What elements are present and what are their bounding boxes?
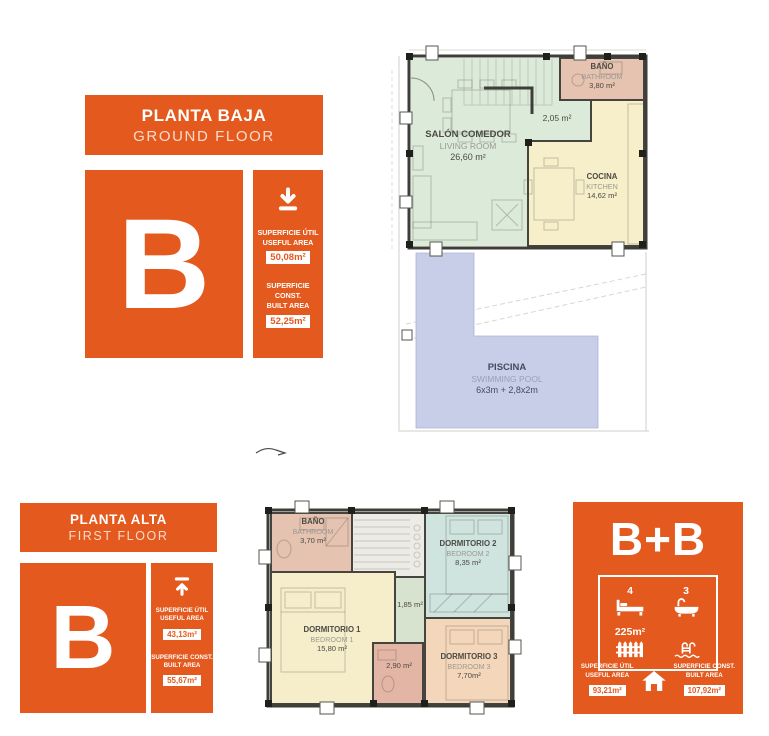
useful-area-label-en: USEFUL AREA bbox=[257, 238, 318, 248]
bathroom-label: BAÑO BATHROOM 3,80 m² bbox=[558, 62, 646, 91]
ground-floor-useful-area: SUPERFICIE ÚTIL USEFUL AREA 50,08m² bbox=[257, 228, 318, 265]
bed-icon bbox=[616, 598, 644, 617]
ground-floor-built-area: SUPERFICIE CONST. BUILT AREA 52,25m² bbox=[253, 281, 323, 328]
first-floor-built-area: SUPERFICIE CONST. BUILT AREA 55,67m² bbox=[151, 654, 213, 689]
useful-area-label-en: USEFUL AREA bbox=[156, 615, 209, 623]
ground-floor-header: PLANTA BAJA GROUND FLOOR bbox=[85, 95, 323, 155]
plot-area-value: 225m² bbox=[615, 627, 645, 639]
first-floor-stats-panel: SUPERFICIE ÚTIL USEFUL AREA 43,13m² SUPE… bbox=[151, 563, 213, 713]
bathroom1-label: BAÑO BATHROOM 3,70 m² bbox=[273, 517, 353, 546]
hall-area-label: 1,85 m² bbox=[388, 600, 432, 609]
kitchen-label: COCINA KITCHEN 14,62 m² bbox=[558, 172, 646, 201]
bedrooms-feature: 4 bbox=[616, 586, 644, 618]
useful-area-label-es: SUPERFICIE ÚTIL bbox=[257, 228, 318, 238]
first-floor-letter: B bbox=[51, 587, 116, 690]
plot-feature: 225m² bbox=[615, 627, 645, 658]
useful-area-value: 43,13m² bbox=[163, 629, 201, 640]
first-floor-title: PLANTA ALTA bbox=[20, 512, 217, 527]
built-area-label-en: BUILT AREA bbox=[253, 301, 323, 311]
first-floor-subtitle: FIRST FLOOR bbox=[20, 529, 217, 543]
swimming-pool-label: PISCINA SWIMMING POOL 6x3m + 2,8x2m bbox=[428, 362, 586, 397]
summary-useful-area: SUPERFICIE ÚTIL USEFUL AREA 93,21m² bbox=[581, 663, 634, 698]
fence-icon bbox=[616, 640, 643, 658]
hall-area-label: 2,05 m² bbox=[525, 113, 589, 123]
useful-area-label-es: SUPERFICIE ÚTIL bbox=[156, 607, 209, 615]
useful-area-label-es: SUPERFICIE ÚTIL bbox=[581, 663, 634, 671]
pool-ladder-icon bbox=[673, 640, 700, 659]
bedroom3-label: DORMITORIO 3 BEDROOM 3 7,70m² bbox=[427, 652, 511, 681]
ground-floor-letter-badge: B bbox=[85, 170, 243, 358]
built-area-label-en: BUILT AREA bbox=[674, 672, 736, 680]
floorplan-sheet: PLANTA BAJA GROUND FLOOR B SUPERFICIE ÚT… bbox=[0, 0, 769, 736]
squiggle-mark bbox=[256, 449, 285, 455]
ground-floor-stats-panel: SUPERFICIE ÚTIL USEFUL AREA 50,08m² SUPE… bbox=[253, 170, 323, 358]
features-box: 4 3 bbox=[598, 575, 718, 671]
summary-areas: SUPERFICIE ÚTIL USEFUL AREA 93,21m² SUPE… bbox=[573, 663, 743, 698]
bathtub-icon bbox=[673, 598, 700, 617]
built-area-value: 55,67m² bbox=[163, 675, 201, 686]
unit-name: B+B bbox=[573, 516, 743, 562]
useful-area-value: 93,21m² bbox=[589, 685, 626, 696]
first-floor-useful-area: SUPERFICIE ÚTIL USEFUL AREA 43,13m² bbox=[156, 607, 209, 642]
first-floor-letter-badge: B bbox=[20, 563, 146, 713]
bathrooms-count: 3 bbox=[683, 586, 689, 598]
built-area-label-es: SUPERFICIE CONST. bbox=[253, 281, 323, 300]
built-area-label-es: SUPERFICIE CONST. bbox=[151, 654, 213, 662]
pool-feature bbox=[673, 640, 700, 659]
house-icon bbox=[641, 669, 667, 693]
built-area-label-en: BUILT AREA bbox=[151, 662, 213, 670]
first-floor-header: PLANTA ALTA FIRST FLOOR bbox=[20, 503, 217, 552]
pool-shape bbox=[416, 253, 598, 428]
bathroom2-area-label: 2,90 m² bbox=[376, 661, 422, 670]
ground-floor-title: PLANTA BAJA bbox=[85, 106, 323, 126]
living-room-label: SALÓN COMEDOR LIVING ROOM 26,60 m² bbox=[402, 129, 534, 164]
bedroom1-label: DORMITORIO 1 BEDROOM 1 15,80 m² bbox=[276, 625, 388, 654]
useful-area-value: 50,08m² bbox=[266, 251, 309, 264]
ground-floor-letter: B bbox=[118, 191, 210, 338]
first-floor-upload-icon bbox=[171, 575, 193, 597]
summary-built-area: SUPERFICIE CONST. BUILT AREA 107,92m² bbox=[674, 663, 736, 698]
built-area-value: 52,25m² bbox=[266, 315, 309, 328]
bedroom2-label: DORMITORIO 2 BEDROOM 2 8,35 m² bbox=[425, 539, 511, 568]
bedrooms-count: 4 bbox=[627, 586, 633, 598]
ground-floor-download-icon bbox=[274, 186, 302, 214]
hallway bbox=[395, 577, 425, 643]
useful-area-label-en: USEFUL AREA bbox=[581, 672, 634, 680]
bathrooms-feature: 3 bbox=[673, 586, 700, 618]
built-area-value: 107,92m² bbox=[684, 685, 725, 696]
ground-floor-subtitle: GROUND FLOOR bbox=[85, 128, 323, 145]
unit-summary-panel: B+B 4 3 bbox=[573, 502, 743, 714]
built-area-label-es: SUPERFICIE CONST. bbox=[674, 663, 736, 671]
